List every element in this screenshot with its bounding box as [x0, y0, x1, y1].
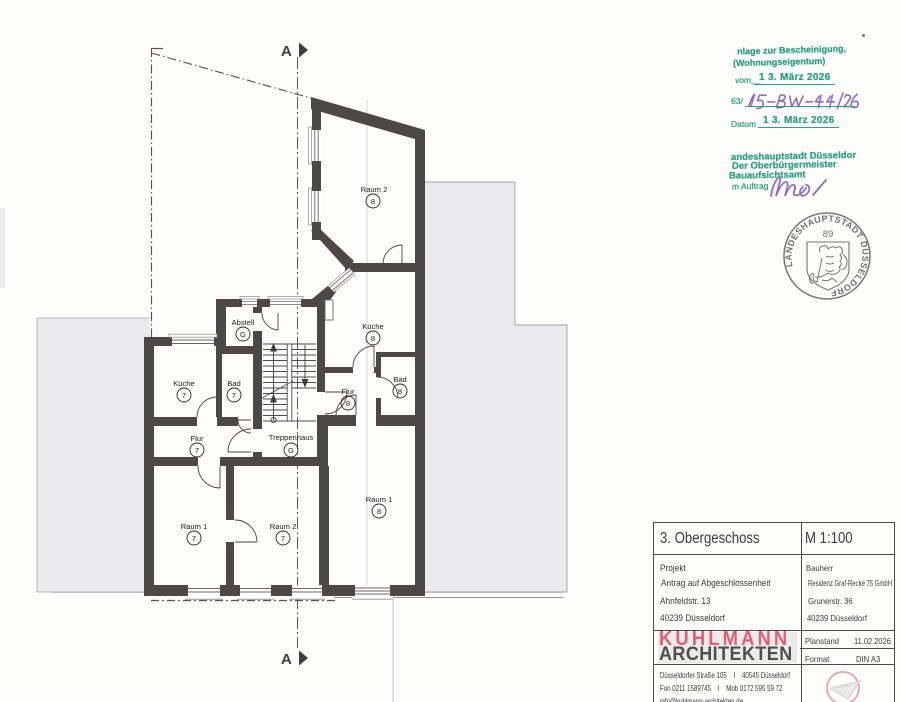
svg-text:Raum 1: Raum 1 — [181, 522, 208, 531]
svg-text:Flur: Flur — [190, 434, 204, 443]
svg-text:8: 8 — [377, 507, 381, 516]
svg-text:8: 8 — [371, 334, 375, 343]
svg-text:G: G — [240, 330, 246, 339]
svg-text:7: 7 — [232, 391, 236, 400]
svg-text:A: A — [281, 43, 292, 60]
svg-text:Abstell: Abstell — [232, 318, 255, 327]
svg-text:Küche: Küche — [173, 379, 195, 388]
svg-text:Bad: Bad — [227, 379, 241, 388]
svg-text:7: 7 — [281, 534, 285, 543]
svg-text:Bad: Bad — [393, 375, 407, 384]
svg-text:Flur: Flur — [341, 387, 355, 396]
svg-text:7: 7 — [182, 391, 186, 400]
svg-text:7: 7 — [195, 446, 199, 455]
svg-text:8: 8 — [371, 197, 375, 206]
svg-text:A: A — [281, 651, 292, 668]
svg-text:8: 8 — [346, 399, 350, 408]
svg-text:Raum 2: Raum 2 — [361, 185, 388, 194]
svg-text:Treppenhaus: Treppenhaus — [269, 433, 314, 442]
svg-text:89: 89 — [823, 229, 834, 240]
svg-text:G: G — [288, 446, 294, 455]
svg-text:Raum 1: Raum 1 — [366, 495, 393, 504]
svg-text:Küche: Küche — [362, 322, 384, 331]
svg-text:7: 7 — [192, 534, 196, 543]
svg-text:Raum 2: Raum 2 — [270, 522, 297, 531]
svg-text:8: 8 — [398, 387, 402, 396]
